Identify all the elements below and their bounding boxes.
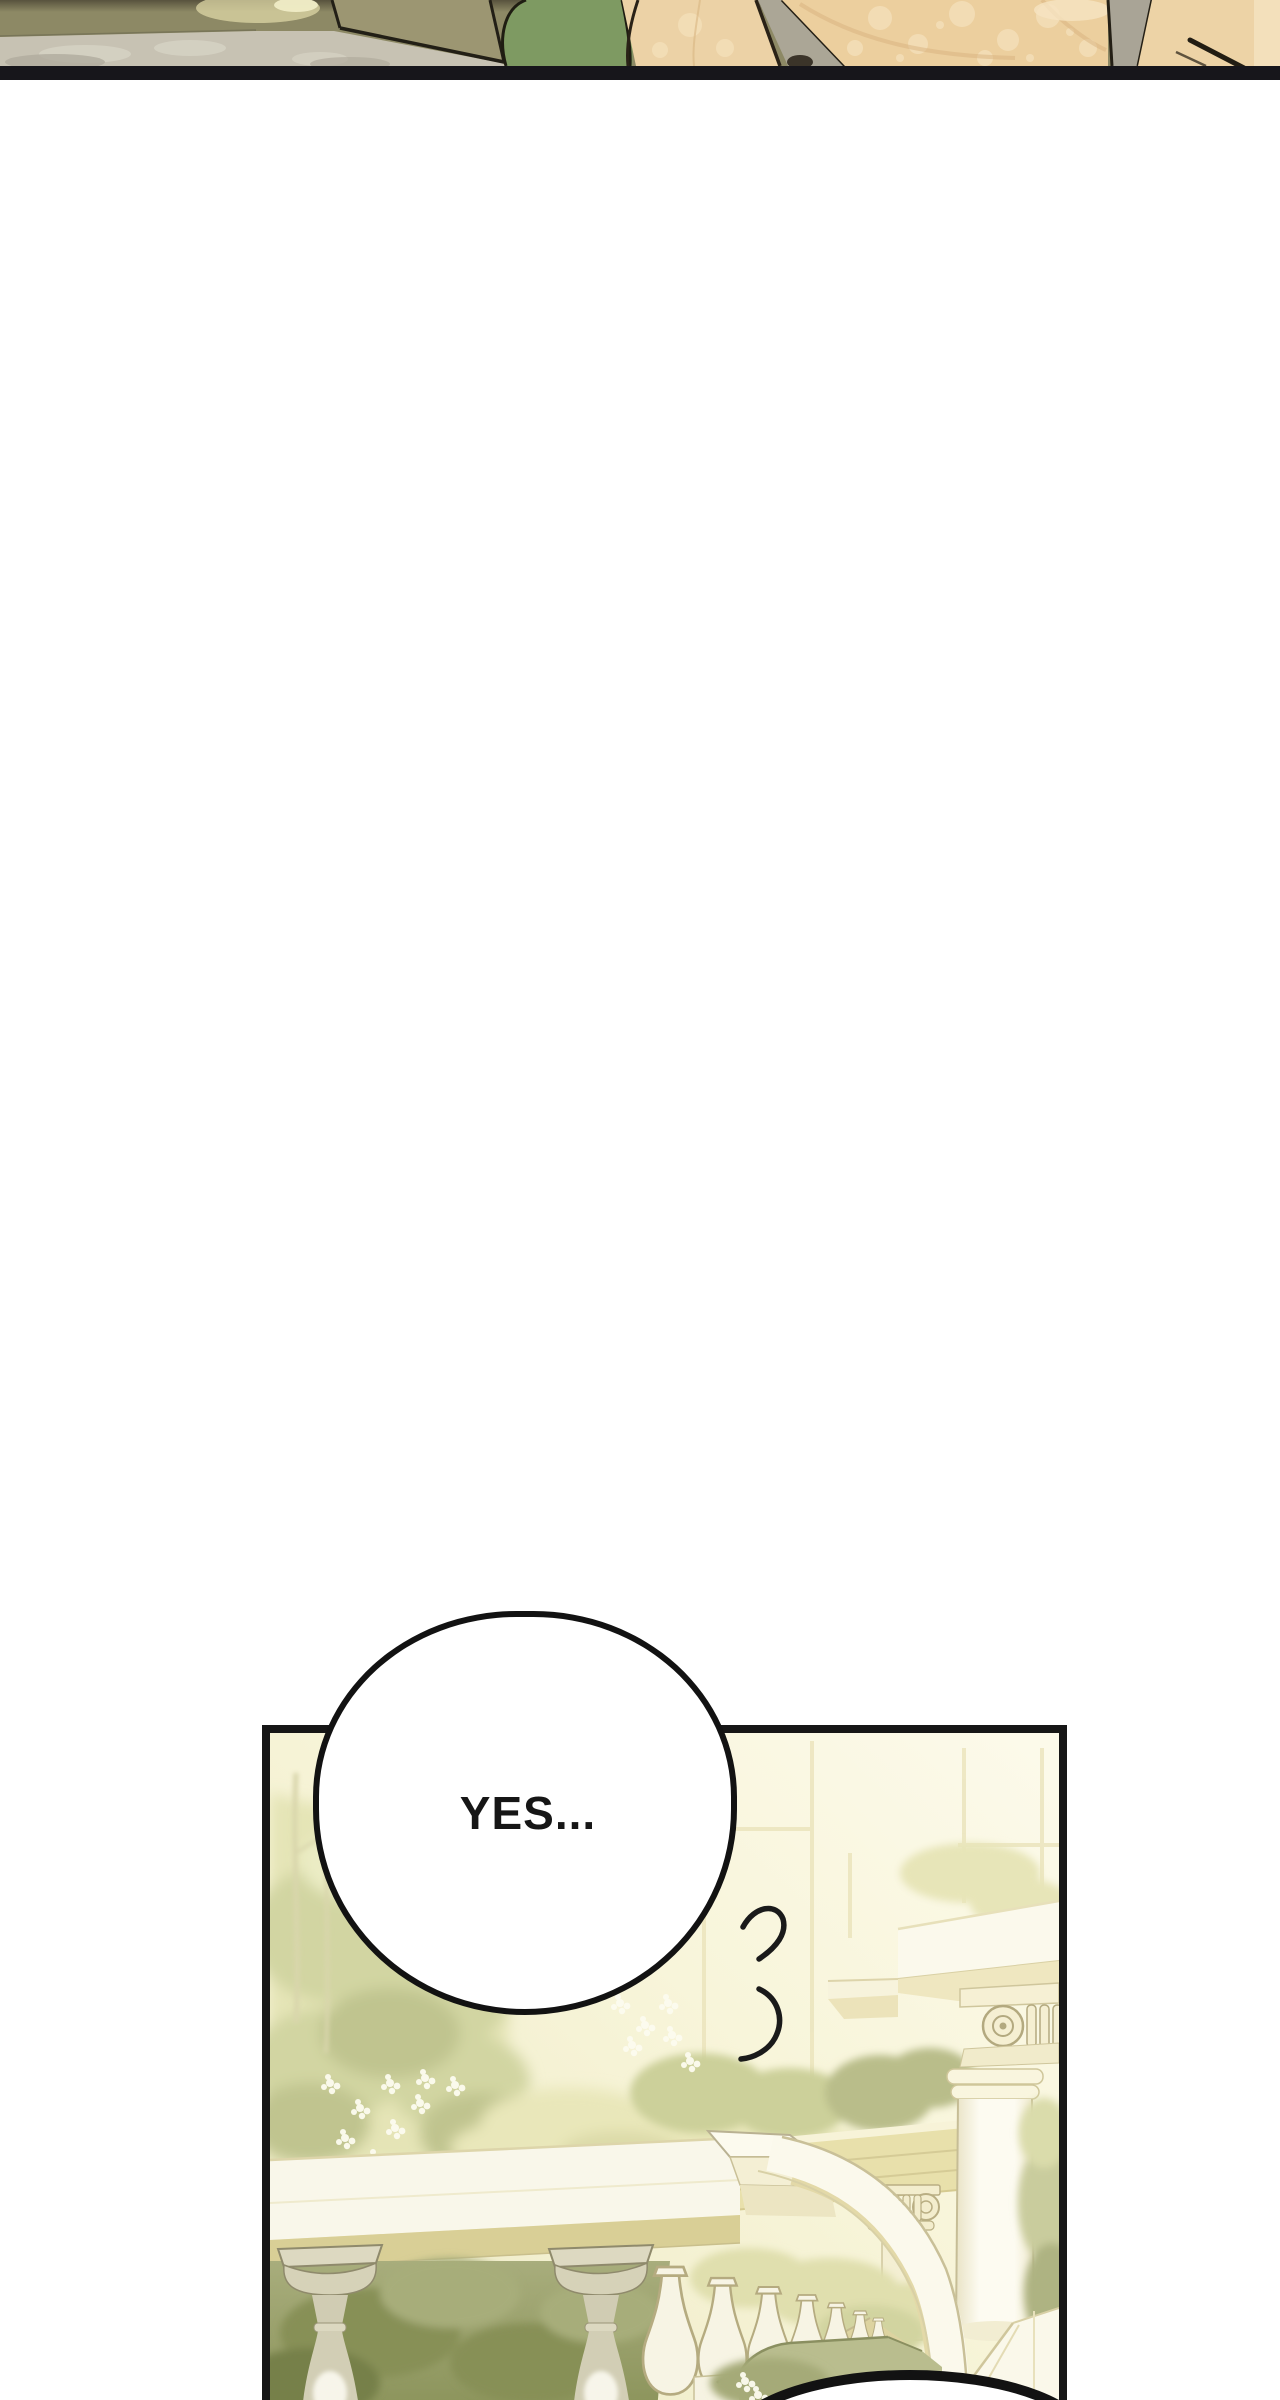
previous-panel-bottom-border: [0, 66, 1280, 80]
comic-page: YES...: [0, 0, 1280, 2400]
speech-bubble: YES...: [313, 1611, 737, 2015]
tan-sleeve: [622, 0, 780, 66]
speech-bubble-text: YES...: [454, 1786, 596, 1840]
green-garment: [503, 0, 633, 66]
breath-marks-icon: [715, 1895, 815, 2070]
previous-panel-art: [0, 0, 1280, 80]
tan-robe-right: [1138, 0, 1280, 68]
page-gutter: [0, 80, 1280, 1725]
previous-panel-strip: [0, 0, 1280, 80]
